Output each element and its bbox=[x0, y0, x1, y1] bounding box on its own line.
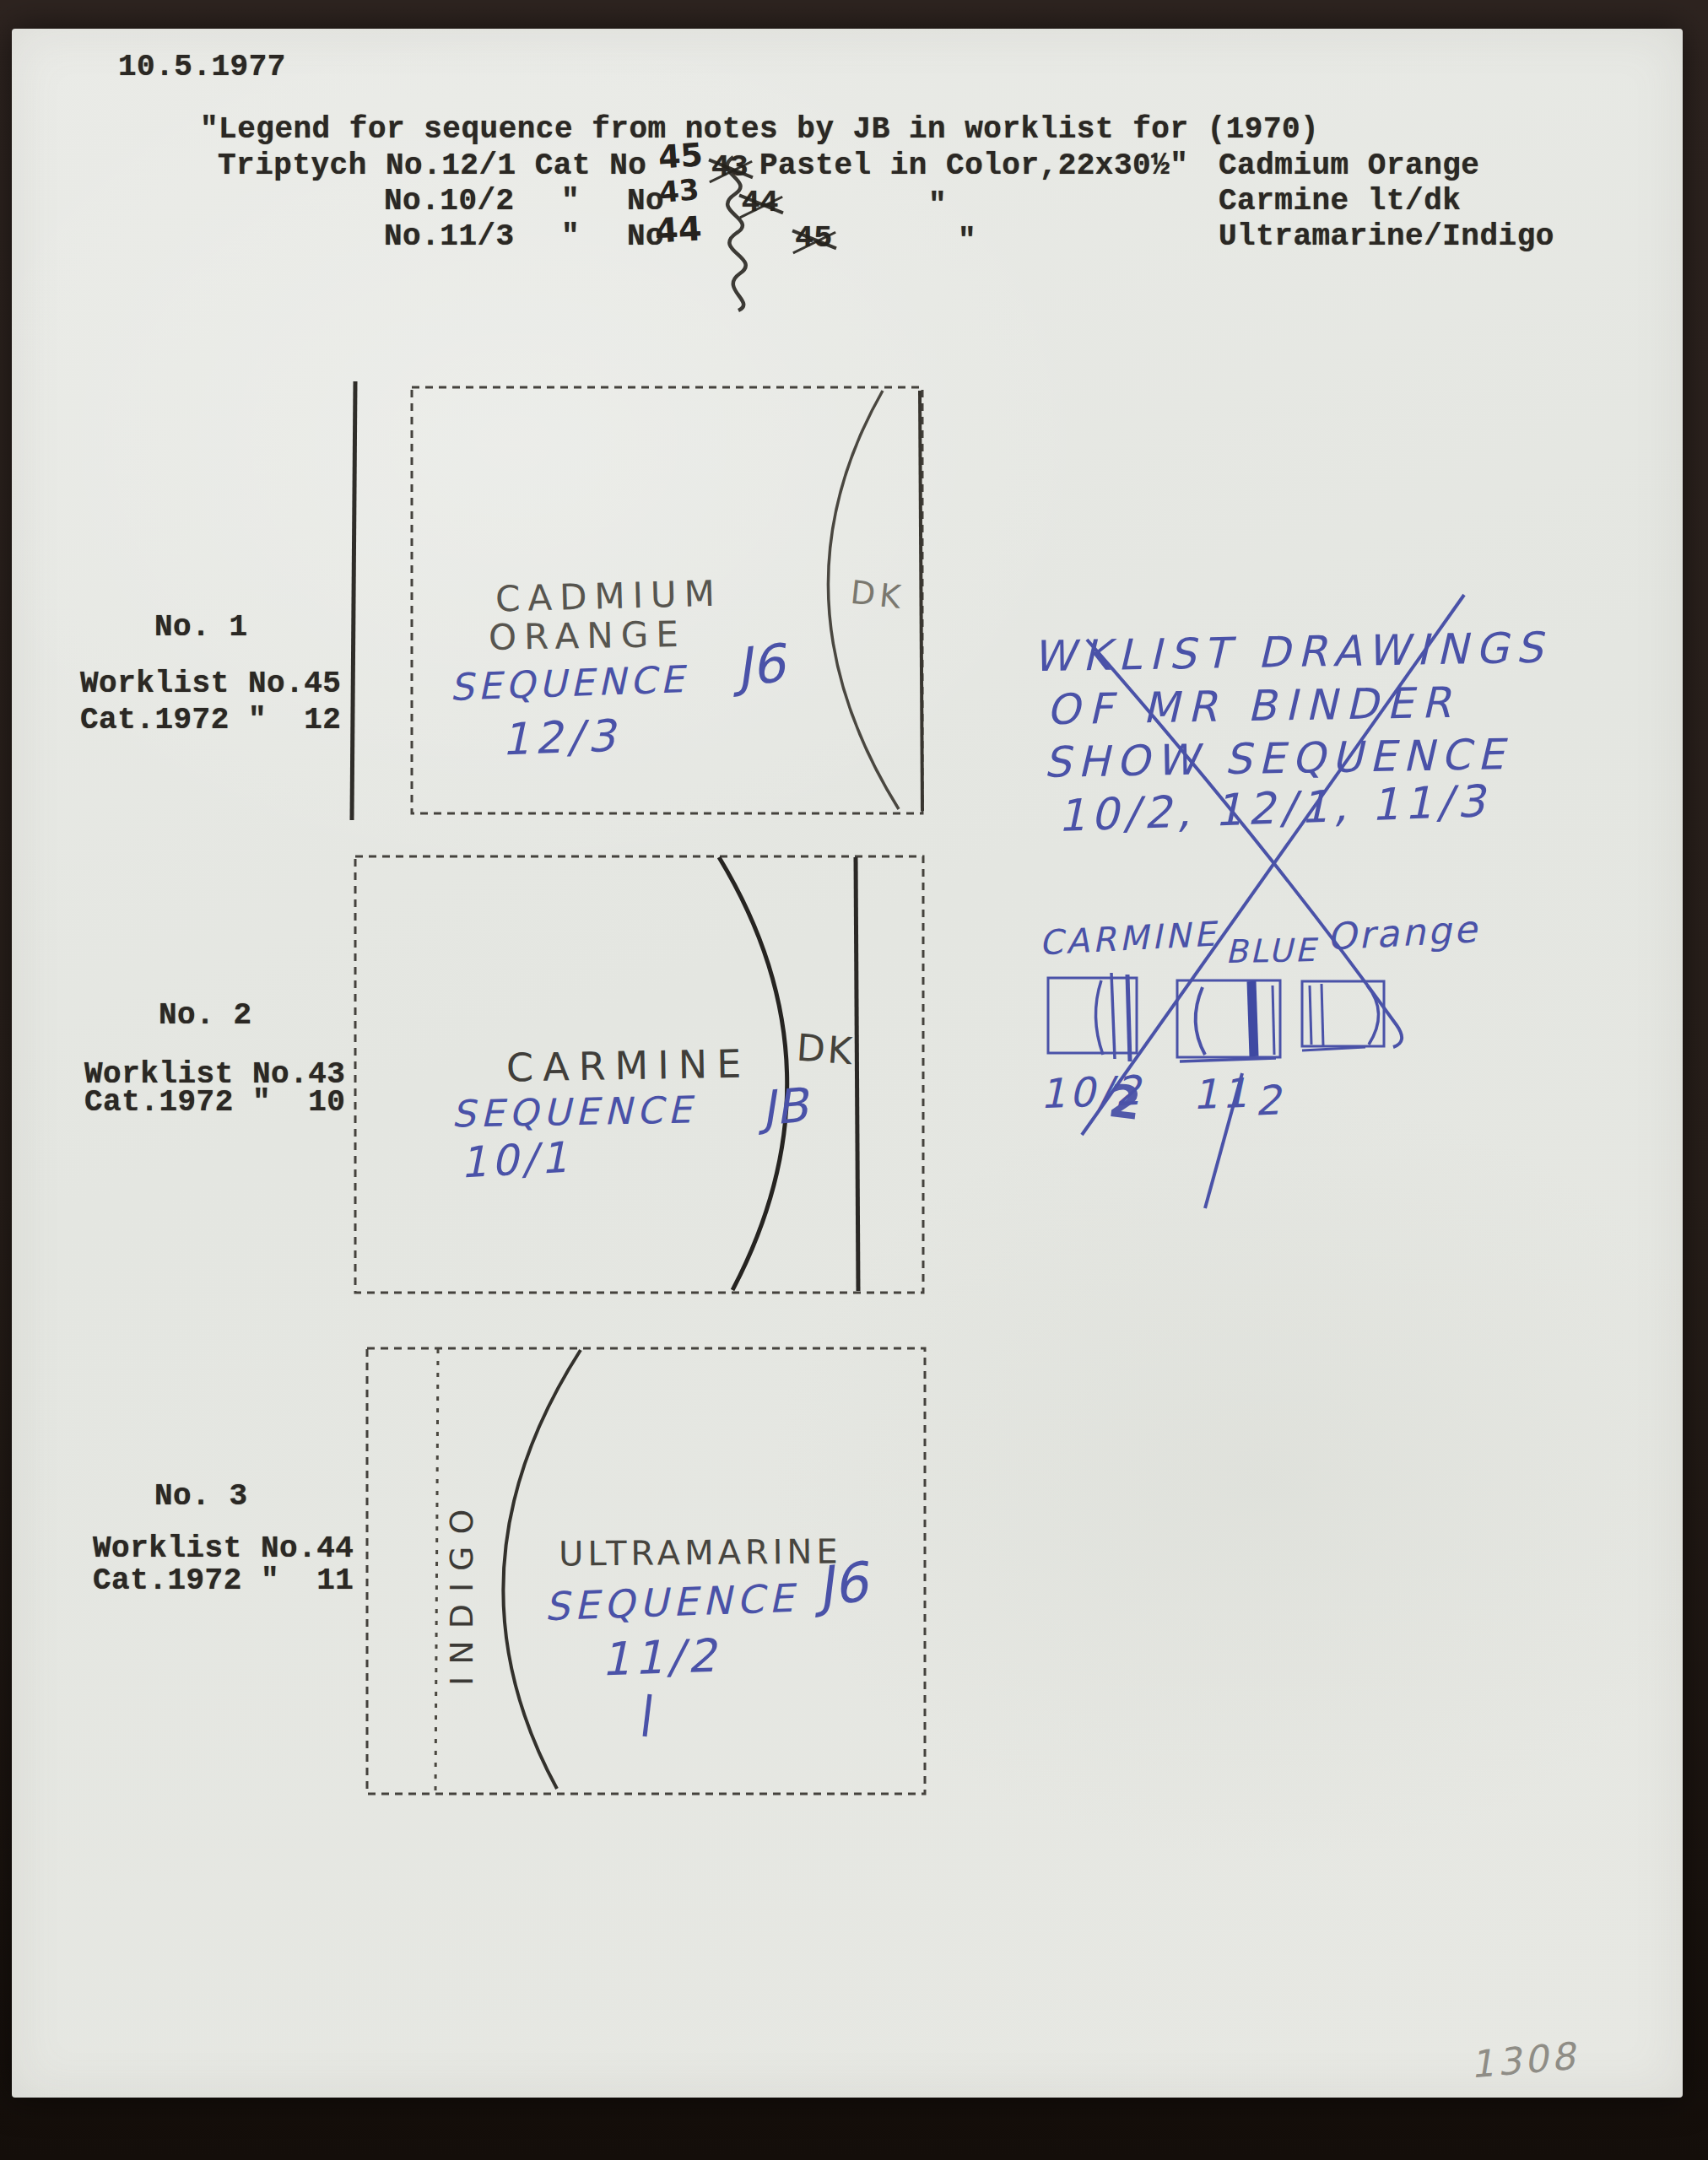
thumbnail-title-carmine: CARMINE bbox=[1038, 916, 1219, 959]
panel-3-catalogue: Cat.1972 " 11 bbox=[93, 1566, 354, 1596]
header-row2-struck-number: 44 bbox=[742, 188, 779, 219]
header-row3-ditto-medium: " bbox=[958, 226, 976, 256]
thumbnail-label-2-left: 11 bbox=[1192, 1072, 1251, 1115]
thumbnail-label-1-overdraw: 2 bbox=[1106, 1078, 1143, 1127]
header-row1-left: Triptych No.12/1 Cat No bbox=[218, 151, 646, 181]
header-row1-struck-number: 43 bbox=[711, 153, 749, 183]
panel-1-catalogue: Cat.1972 " 12 bbox=[80, 705, 341, 736]
panel-2-catalogue: Cat.1972 " 10 bbox=[84, 1088, 345, 1118]
header-row3-ditto-cat: " bbox=[561, 222, 580, 252]
header-row2-ditto-medium: " bbox=[928, 191, 947, 221]
scan-background: 10.5.1977 "Legend for sequence from note… bbox=[0, 0, 1708, 2160]
header-row2-correction: 43 bbox=[658, 175, 700, 207]
margin-note-line2: OF MR BINDER bbox=[1046, 682, 1460, 732]
panel-1-sequence-number: 12/3 bbox=[500, 714, 621, 762]
thumbnail-title-blue: BLUE bbox=[1225, 934, 1318, 968]
header-row1-medium: Pastel in Color,22x30½" bbox=[759, 151, 1188, 181]
panel-2-number: No. 2 bbox=[159, 1001, 252, 1031]
panel-3-number: No. 3 bbox=[154, 1482, 248, 1512]
header-row2-left: No.10/2 bbox=[384, 186, 515, 217]
header-line1: "Legend for sequence from notes by JB in… bbox=[200, 115, 1319, 145]
panel-1-number: No. 1 bbox=[154, 613, 248, 643]
header-row3-color: Ultramarine/Indigo bbox=[1219, 222, 1554, 252]
header-row3-correction: 44 bbox=[654, 212, 703, 248]
panel-1-worklist: Worklist No.45 bbox=[80, 669, 341, 699]
thumbnail-label-2-right: 2 bbox=[1254, 1079, 1281, 1120]
panel-2-sequence-number: 10/1 bbox=[459, 1137, 573, 1185]
panel-1-title-line1: CADMIUM bbox=[495, 575, 722, 617]
panel-1-sequence-mark: J6 bbox=[733, 637, 787, 694]
panel-3-sequence-number: 11/2 bbox=[600, 1633, 721, 1683]
header-row3-struck-number: 45 bbox=[795, 224, 832, 254]
header-row1-correction: 45 bbox=[657, 138, 704, 174]
panel-1-title-line2: ORANGE bbox=[489, 617, 686, 656]
margin-note-line3: SHOW SEQUENCE bbox=[1044, 733, 1511, 784]
panel-3-sequence-word: SEQUENCE bbox=[543, 1579, 798, 1626]
margin-note-line1: WKLIST DRAWINGS bbox=[1033, 627, 1551, 678]
panel-2-dk-note: DK bbox=[796, 1029, 857, 1071]
header-row3-left: No.11/3 bbox=[384, 222, 515, 252]
panel-2-sequence-mark: JB bbox=[759, 1082, 810, 1133]
panel-3-title-line1: ULTRAMARINE bbox=[559, 1535, 842, 1571]
panel-1-dk-note: DK bbox=[849, 576, 906, 614]
panel-3-worklist: Worklist No.44 bbox=[93, 1534, 354, 1564]
panel-2-sequence-word: SEQUENCE bbox=[451, 1091, 697, 1132]
header-row1-color: Cadmium Orange bbox=[1219, 151, 1479, 181]
panel-2-title-line1: CARMINE bbox=[506, 1044, 751, 1087]
panel-3-vertical-label: INDIGO bbox=[446, 1483, 478, 1686]
page-number: 1308 bbox=[1468, 2038, 1579, 2084]
header-row2-color: Carmine lt/dk bbox=[1219, 186, 1461, 217]
panel-3-sequence-mark: J6 bbox=[813, 1555, 870, 1615]
panel-1-sequence-word: SEQUENCE bbox=[449, 661, 688, 706]
thumbnail-title-orange: Orange bbox=[1326, 910, 1480, 955]
header-row2-ditto-cat: " bbox=[561, 186, 580, 217]
date: 10.5.1977 bbox=[118, 52, 286, 83]
